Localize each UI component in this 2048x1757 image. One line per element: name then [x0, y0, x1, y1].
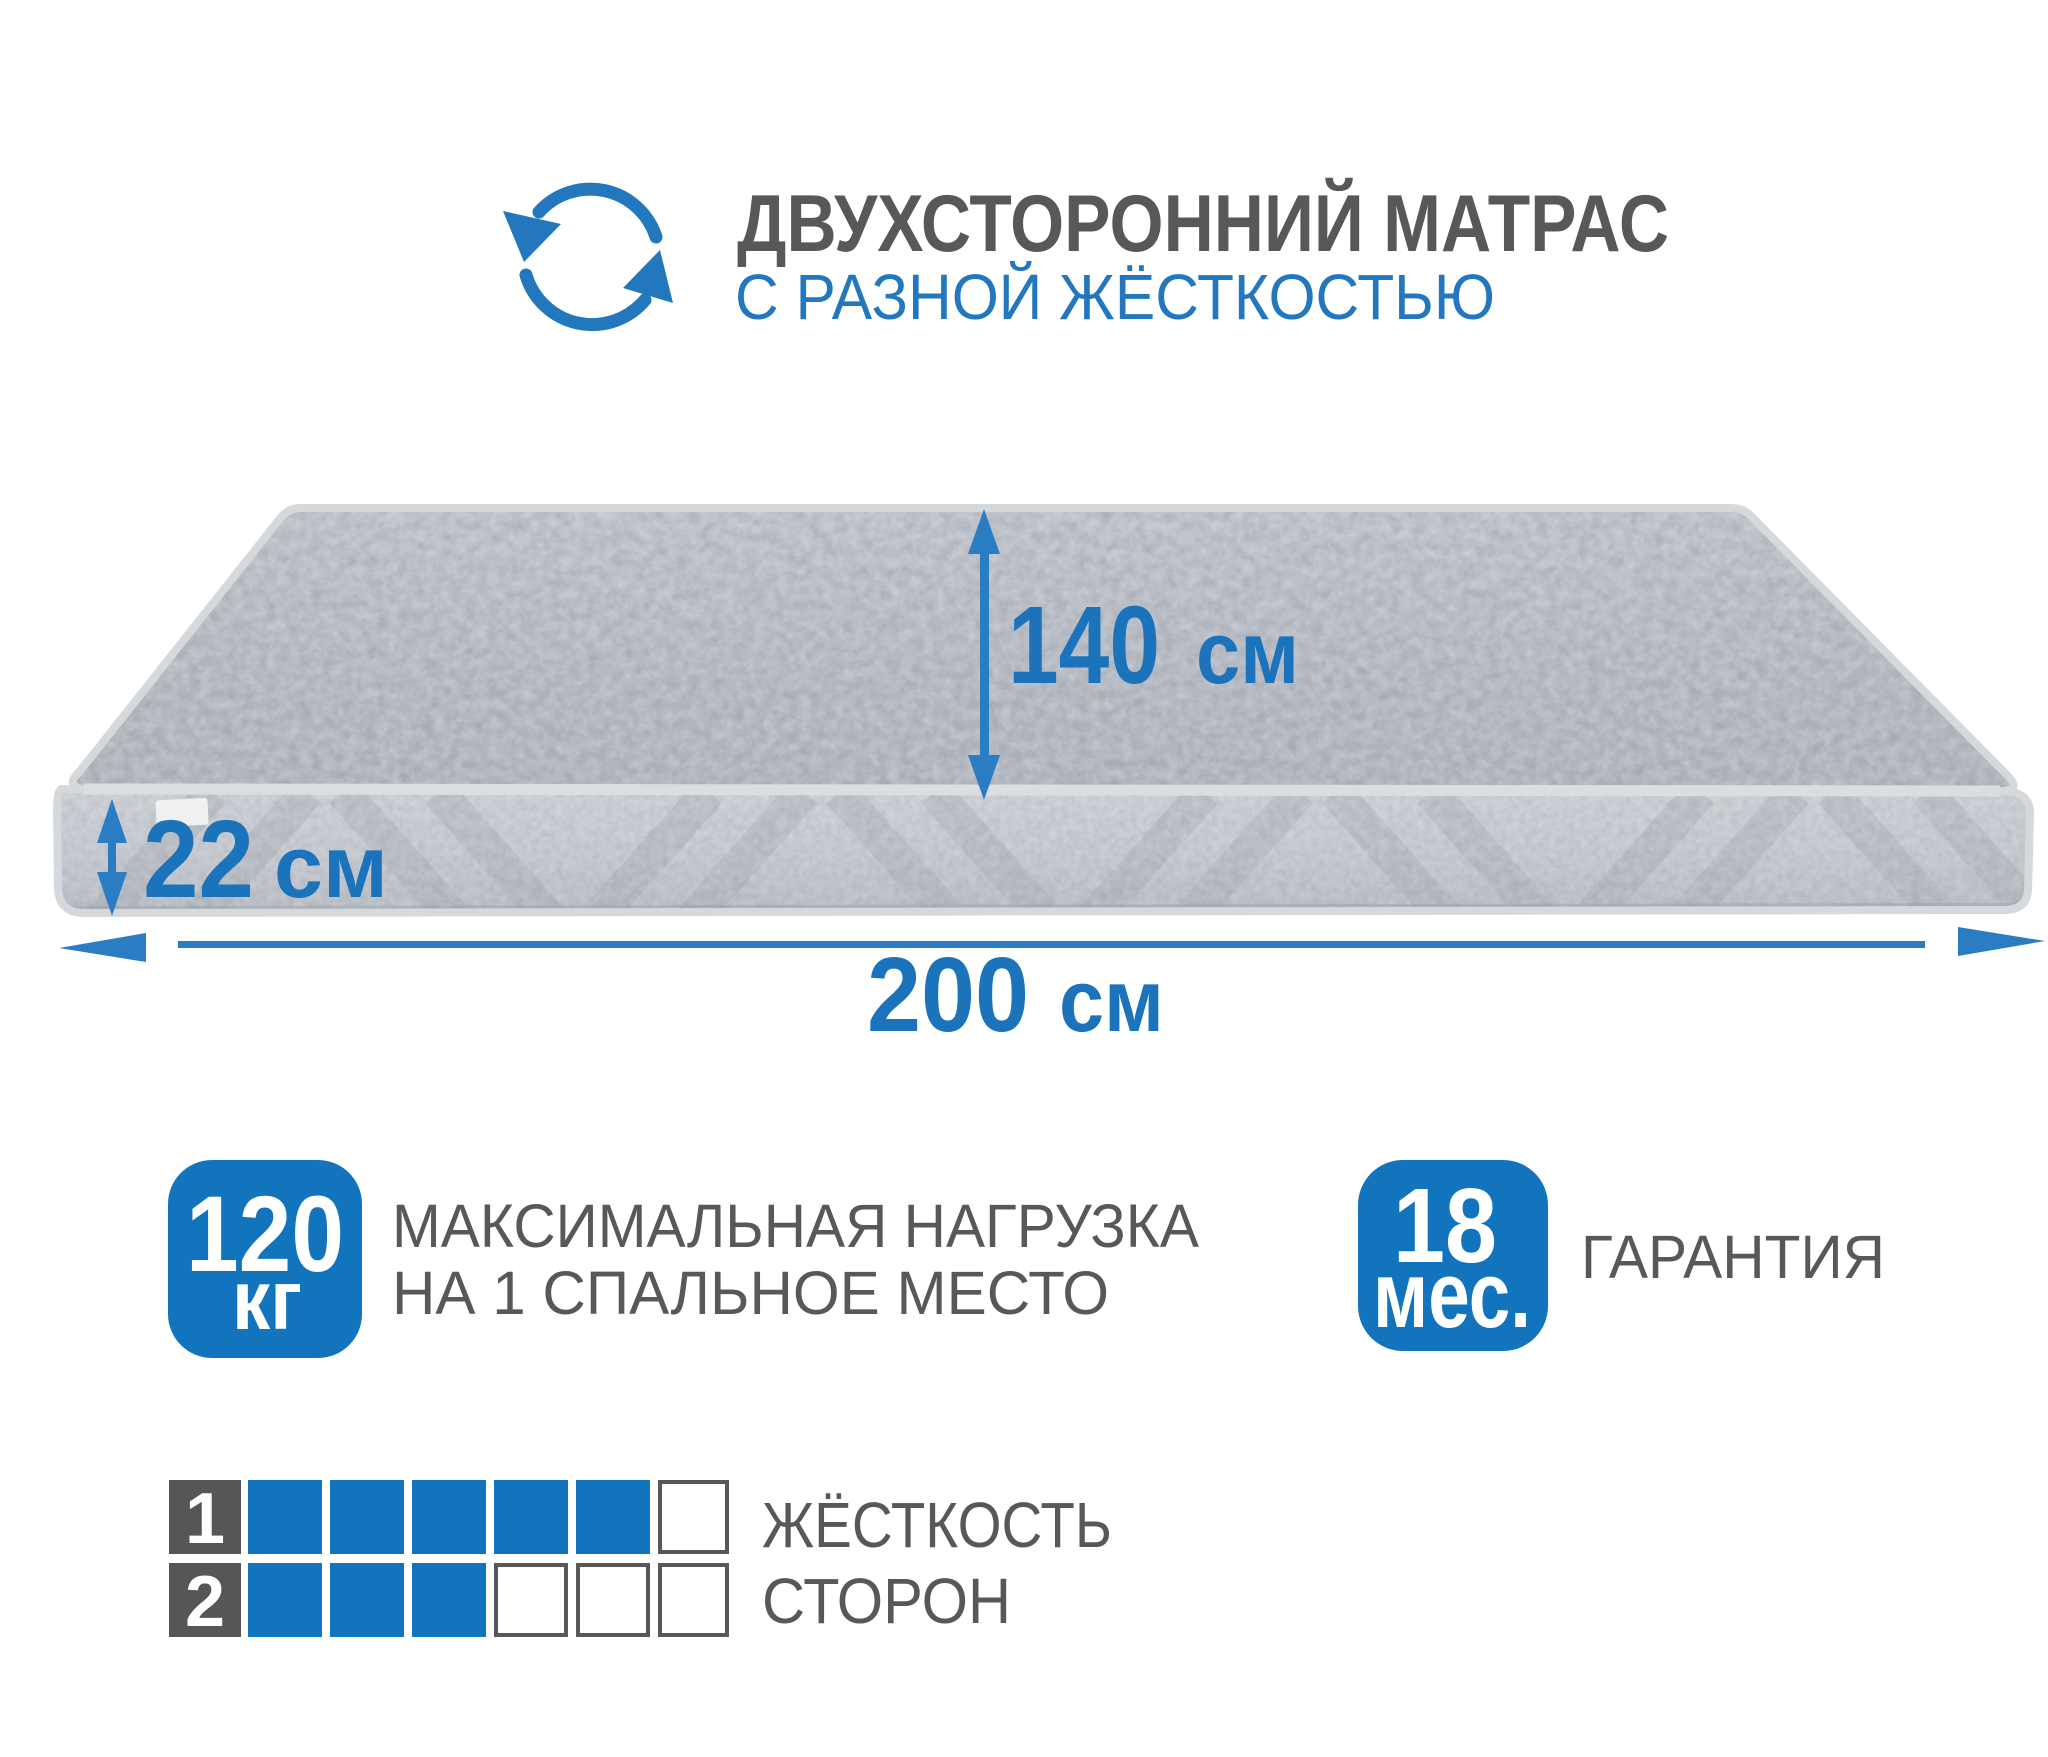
svg-text:МАКСИМАЛЬНАЯ НАГРУЗКА: МАКСИМАЛЬНАЯ НАГРУЗКА [392, 1192, 1199, 1260]
svg-text:140: 140 [1008, 584, 1160, 707]
svg-text:С РАЗНОЙ ЖЁСТКОСТЬЮ: С РАЗНОЙ ЖЁСТКОСТЬЮ [735, 260, 1495, 333]
svg-text:ГАРАНТИЯ: ГАРАНТИЯ [1581, 1223, 1885, 1291]
svg-text:ДВУХСТОРОННИЙ МАТРАС: ДВУХСТОРОННИЙ МАТРАС [737, 177, 1669, 269]
svg-text:кг: кг [232, 1253, 302, 1347]
svg-text:2: 2 [185, 1562, 225, 1642]
svg-text:см: см [274, 817, 388, 916]
svg-text:200: 200 [867, 936, 1029, 1054]
svg-text:см: см [1059, 951, 1164, 1050]
svg-text:мес.: мес. [1373, 1242, 1531, 1347]
svg-text:22: 22 [143, 798, 254, 921]
svg-text:ЖЁСТКОСТЬ: ЖЁСТКОСТЬ [762, 1489, 1112, 1561]
svg-text:см: см [1196, 603, 1299, 702]
svg-text:СТОРОН: СТОРОН [762, 1565, 1011, 1637]
svg-text:1: 1 [185, 1479, 225, 1559]
svg-text:НА 1 СПАЛЬНОЕ МЕСТО: НА 1 СПАЛЬНОЕ МЕСТО [392, 1259, 1109, 1327]
